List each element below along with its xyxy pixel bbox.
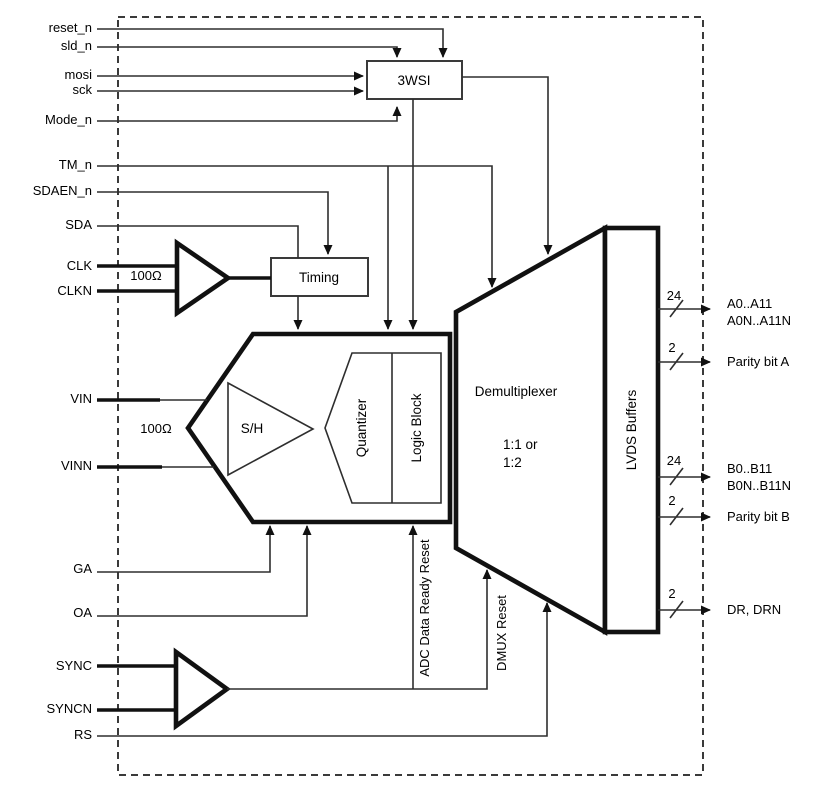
pin-label-rs: RS — [74, 727, 92, 742]
pin-label-ga: GA — [73, 561, 92, 576]
pin-label-clkn: CLKN — [57, 283, 92, 298]
adc-data-ready-reset-label: ADC Data Ready Reset — [417, 539, 432, 677]
out-label-parity-a: Parity bit A — [727, 354, 789, 369]
bus-a-width: 24 — [667, 288, 681, 303]
dmux-reset-label: DMUX Reset — [494, 595, 509, 671]
out-label-parity-b: Parity bit B — [727, 509, 790, 524]
out-label-b-line2: B0N..B11N — [727, 478, 791, 493]
bus-b-width: 24 — [667, 453, 681, 468]
parity-b-width: 2 — [668, 493, 675, 508]
pin-label-sck: sck — [73, 82, 93, 97]
adc-block-diagram: reset_n sld_n mosi sck Mode_n TM_n SDAEN… — [0, 0, 834, 794]
quantizer-label: Quantizer — [354, 398, 369, 457]
pin-label-vin: VIN — [70, 391, 92, 406]
out-label-a-line2: A0N..A11N — [727, 313, 791, 328]
out-label-a-line1: A0..A11 — [727, 296, 772, 311]
diagram-canvas: reset_n sld_n mosi sck Mode_n TM_n SDAEN… — [0, 0, 834, 794]
pin-label-sync: SYNC — [56, 658, 92, 673]
dr-width: 2 — [668, 586, 675, 601]
pin-label-reset-n: reset_n — [49, 20, 92, 35]
pin-label-syncn: SYNCN — [46, 701, 92, 716]
pin-label-sld-n: sld_n — [61, 38, 92, 53]
timing-block-label: Timing — [299, 270, 339, 285]
pin-label-sdaen-n: SDAEN_n — [33, 183, 92, 198]
out-label-dr-drn: DR, DRN — [727, 602, 781, 617]
vin-termination-label: 100Ω — [140, 421, 172, 436]
pin-label-oa: OA — [73, 605, 92, 620]
demultiplexer-label: Demultiplexer — [475, 384, 558, 399]
parity-a-width: 2 — [668, 340, 675, 355]
pin-label-clk: CLK — [67, 258, 93, 273]
sample-hold-label: S/H — [241, 421, 264, 436]
pin-label-mosi: mosi — [65, 67, 93, 82]
out-label-b-line1: B0..B11 — [727, 461, 772, 476]
pin-label-sda: SDA — [65, 217, 92, 232]
demux-ratio-line1: 1:1 or — [503, 437, 538, 452]
pin-label-vinn: VINN — [61, 458, 92, 473]
clk-termination-label: 100Ω — [130, 268, 162, 283]
wsi-block-label: 3WSI — [397, 73, 430, 88]
demux-ratio-line2: 1:2 — [503, 455, 522, 470]
pin-label-mode-n: Mode_n — [45, 112, 92, 127]
lvds-buffers-label: LVDS Buffers — [624, 389, 639, 470]
pin-label-tm-n: TM_n — [59, 157, 92, 172]
logic-block-label: Logic Block — [409, 393, 424, 462]
